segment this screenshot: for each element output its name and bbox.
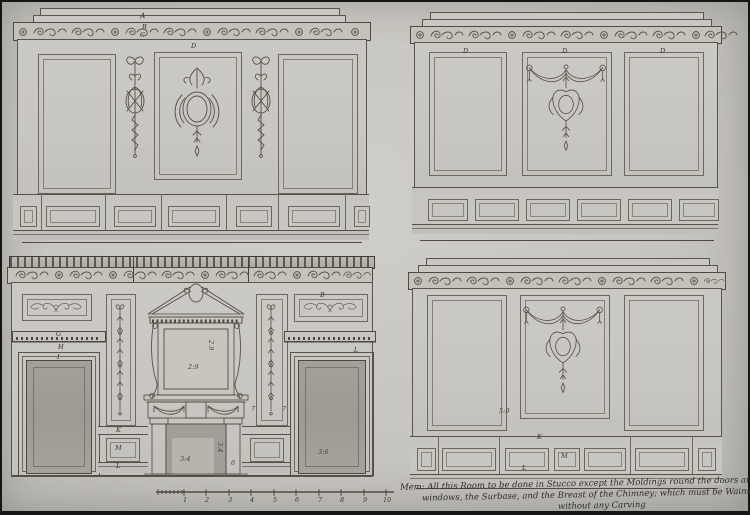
memo-inscription: Mem: All this Room to be done in Stucco …	[2, 2, 750, 515]
paper-sheet: A B C D D D D	[2, 2, 748, 511]
memo-line-3: without any Carving	[558, 500, 646, 512]
photographed-drawing: A B C D D D D	[0, 0, 750, 515]
